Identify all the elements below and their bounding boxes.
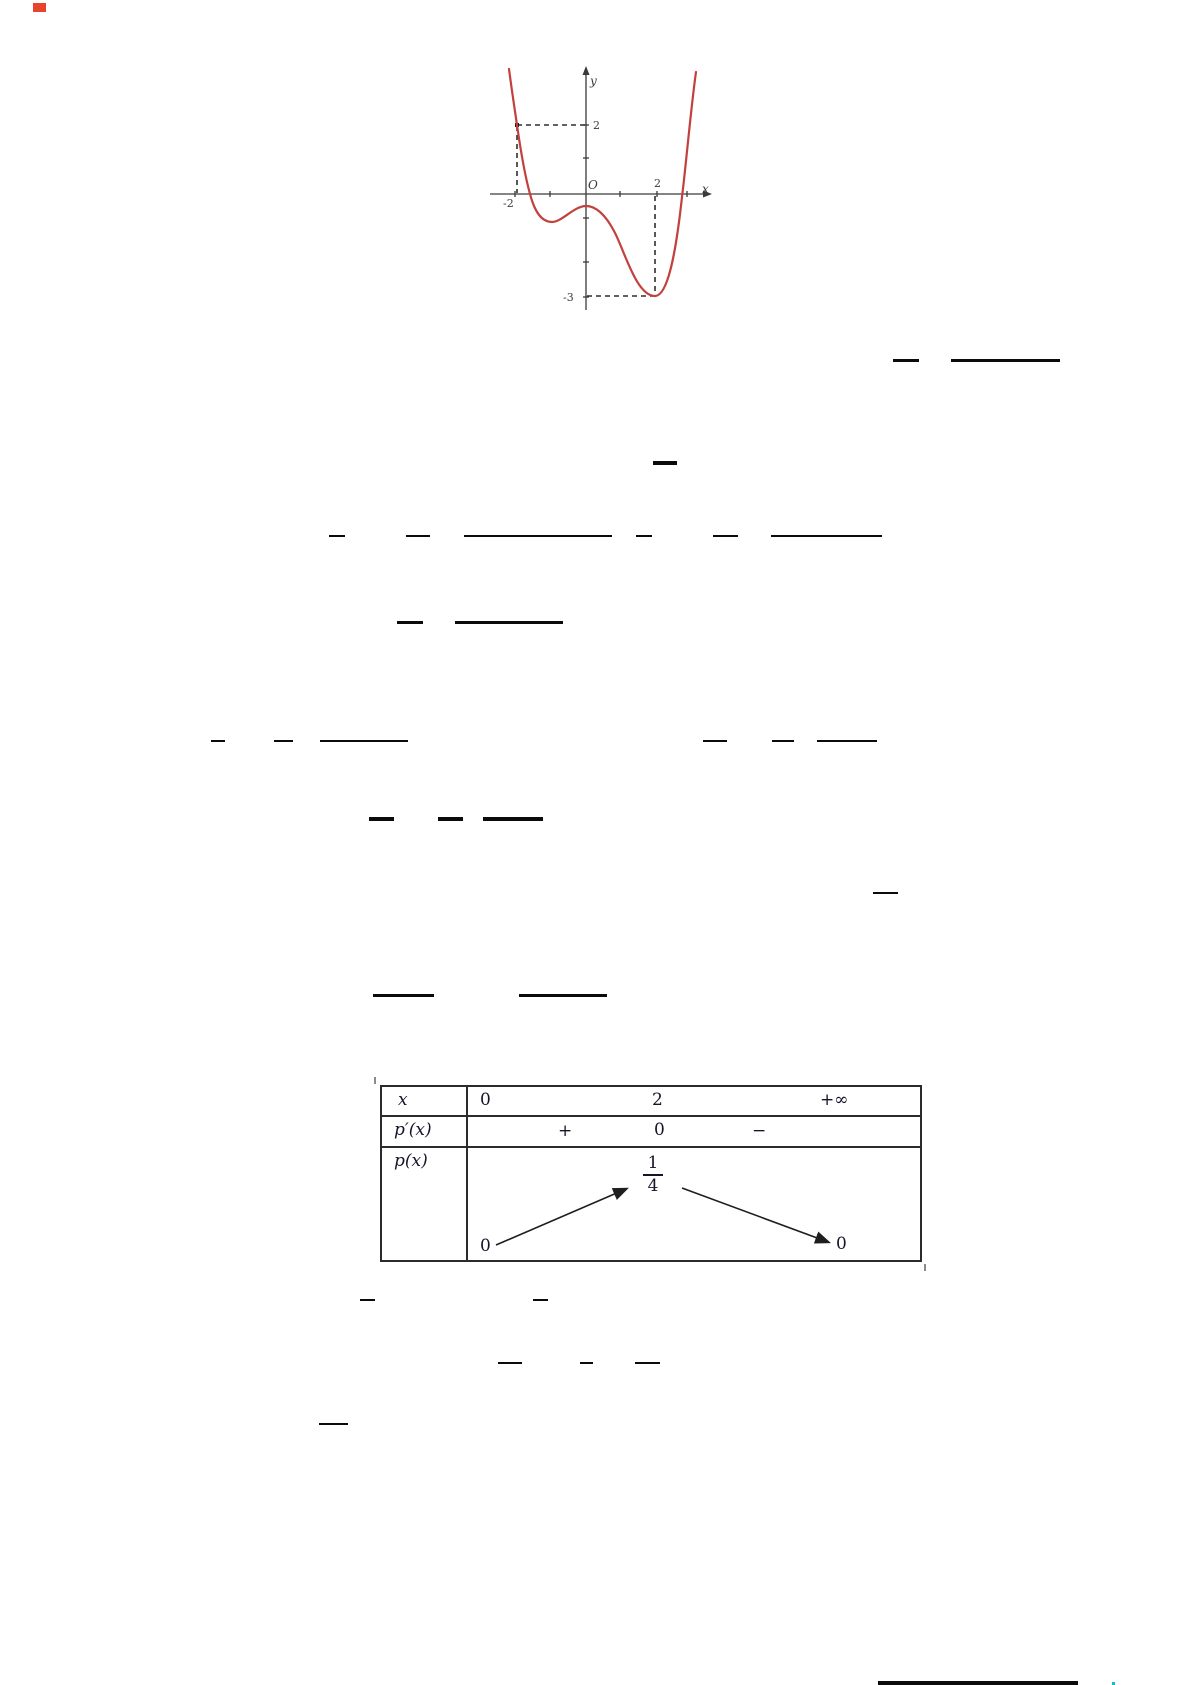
label-y-2: 2 — [593, 120, 600, 131]
bottom-rule — [878, 1681, 1078, 1685]
fraction-bar — [406, 535, 430, 537]
table-var-label: x — [398, 1092, 408, 1109]
deriv-sign-minus: − — [752, 1123, 766, 1140]
y-axis-label: y — [590, 75, 597, 87]
arrow-down — [682, 1188, 828, 1242]
fraction-bar — [464, 535, 612, 537]
table-deriv-label: p′(x) — [394, 1122, 432, 1139]
fraction-bar — [635, 1362, 660, 1364]
fraction-bar — [274, 740, 293, 742]
fraction-bar — [519, 994, 607, 997]
axes — [490, 69, 709, 310]
table-x-value-0: 0 — [480, 1092, 491, 1109]
fraction-bar — [951, 359, 1060, 362]
fraction-bar — [772, 740, 794, 742]
top-left-scan-mark — [33, 3, 46, 12]
table-func-label: p(x) — [394, 1153, 428, 1170]
fraction-bar — [373, 994, 434, 997]
label-x-minus2: -2 — [503, 198, 514, 209]
fraction-bar — [498, 1362, 522, 1364]
fraction-bar — [360, 1299, 375, 1301]
fraction-bar — [438, 817, 463, 821]
fraction-bar — [211, 740, 225, 742]
function-graph-canvas — [425, 45, 725, 315]
variation-arrows — [468, 1148, 922, 1262]
fraction-bar — [397, 621, 423, 624]
fraction-bar — [771, 535, 882, 537]
fraction-bar — [580, 1362, 593, 1364]
fraction-bar — [369, 817, 394, 821]
table-corner-tick-1 — [374, 1077, 376, 1084]
fraction-bar — [320, 740, 408, 742]
table-corner-tick-2 — [924, 1264, 926, 1271]
fraction-bar — [319, 1423, 348, 1425]
origin-label: O — [588, 179, 598, 191]
fraction-bar — [873, 892, 898, 894]
label-x-2: 2 — [654, 178, 661, 189]
function-graph: y x O 2 -2 2 -3 — [425, 45, 725, 315]
fraction-bar — [893, 359, 919, 362]
fraction-bar — [533, 1299, 548, 1301]
variation-table: x 0 2 +∞ p′(x) + 0 − p(x) 0 1 4 0 — [380, 1085, 922, 1262]
deriv-sign-zero: 0 — [654, 1122, 665, 1139]
function-curve — [509, 69, 696, 296]
fraction-bar — [713, 535, 738, 537]
table-x-value-2: 2 — [652, 1092, 663, 1109]
table-x-value-inf: +∞ — [820, 1092, 848, 1109]
label-y-minus3: -3 — [563, 292, 574, 303]
arrow-up — [496, 1189, 626, 1245]
fraction-bar — [653, 461, 677, 465]
fraction-bar — [817, 740, 877, 742]
fraction-bar — [455, 621, 563, 624]
fraction-bar — [329, 535, 345, 537]
fraction-bar — [703, 740, 727, 742]
axis-arrowheads — [583, 66, 713, 198]
fraction-bar — [483, 817, 543, 821]
fraction-bar — [636, 535, 652, 537]
deriv-sign-plus: + — [558, 1123, 572, 1140]
table-row-divider-1 — [382, 1115, 920, 1117]
document-page: y x O 2 -2 2 -3 x 0 2 +∞ p′(x) + 0 − p(x… — [0, 0, 1192, 1685]
x-axis-label: x — [702, 183, 709, 195]
